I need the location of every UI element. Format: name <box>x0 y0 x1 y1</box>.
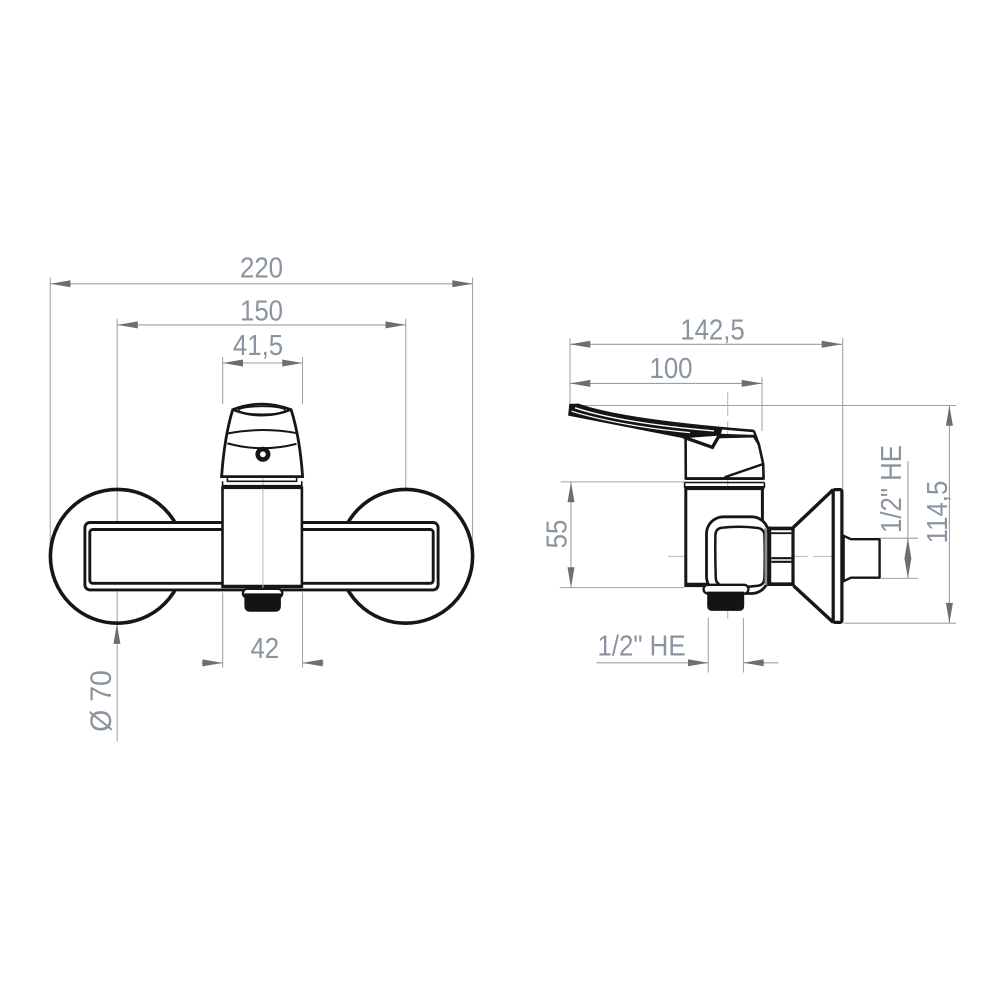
svg-text:Ø 70: Ø 70 <box>85 670 118 732</box>
svg-text:100: 100 <box>649 352 692 385</box>
svg-text:142,5: 142,5 <box>680 313 745 346</box>
svg-text:1/2" HE: 1/2" HE <box>875 445 908 533</box>
svg-text:41,5: 41,5 <box>233 329 283 362</box>
svg-text:220: 220 <box>240 251 283 284</box>
svg-text:114,5: 114,5 <box>921 481 954 544</box>
svg-text:150: 150 <box>240 294 283 327</box>
svg-text:1/2" HE: 1/2" HE <box>598 629 686 662</box>
svg-text:55: 55 <box>540 520 573 549</box>
svg-text:42: 42 <box>250 632 279 665</box>
